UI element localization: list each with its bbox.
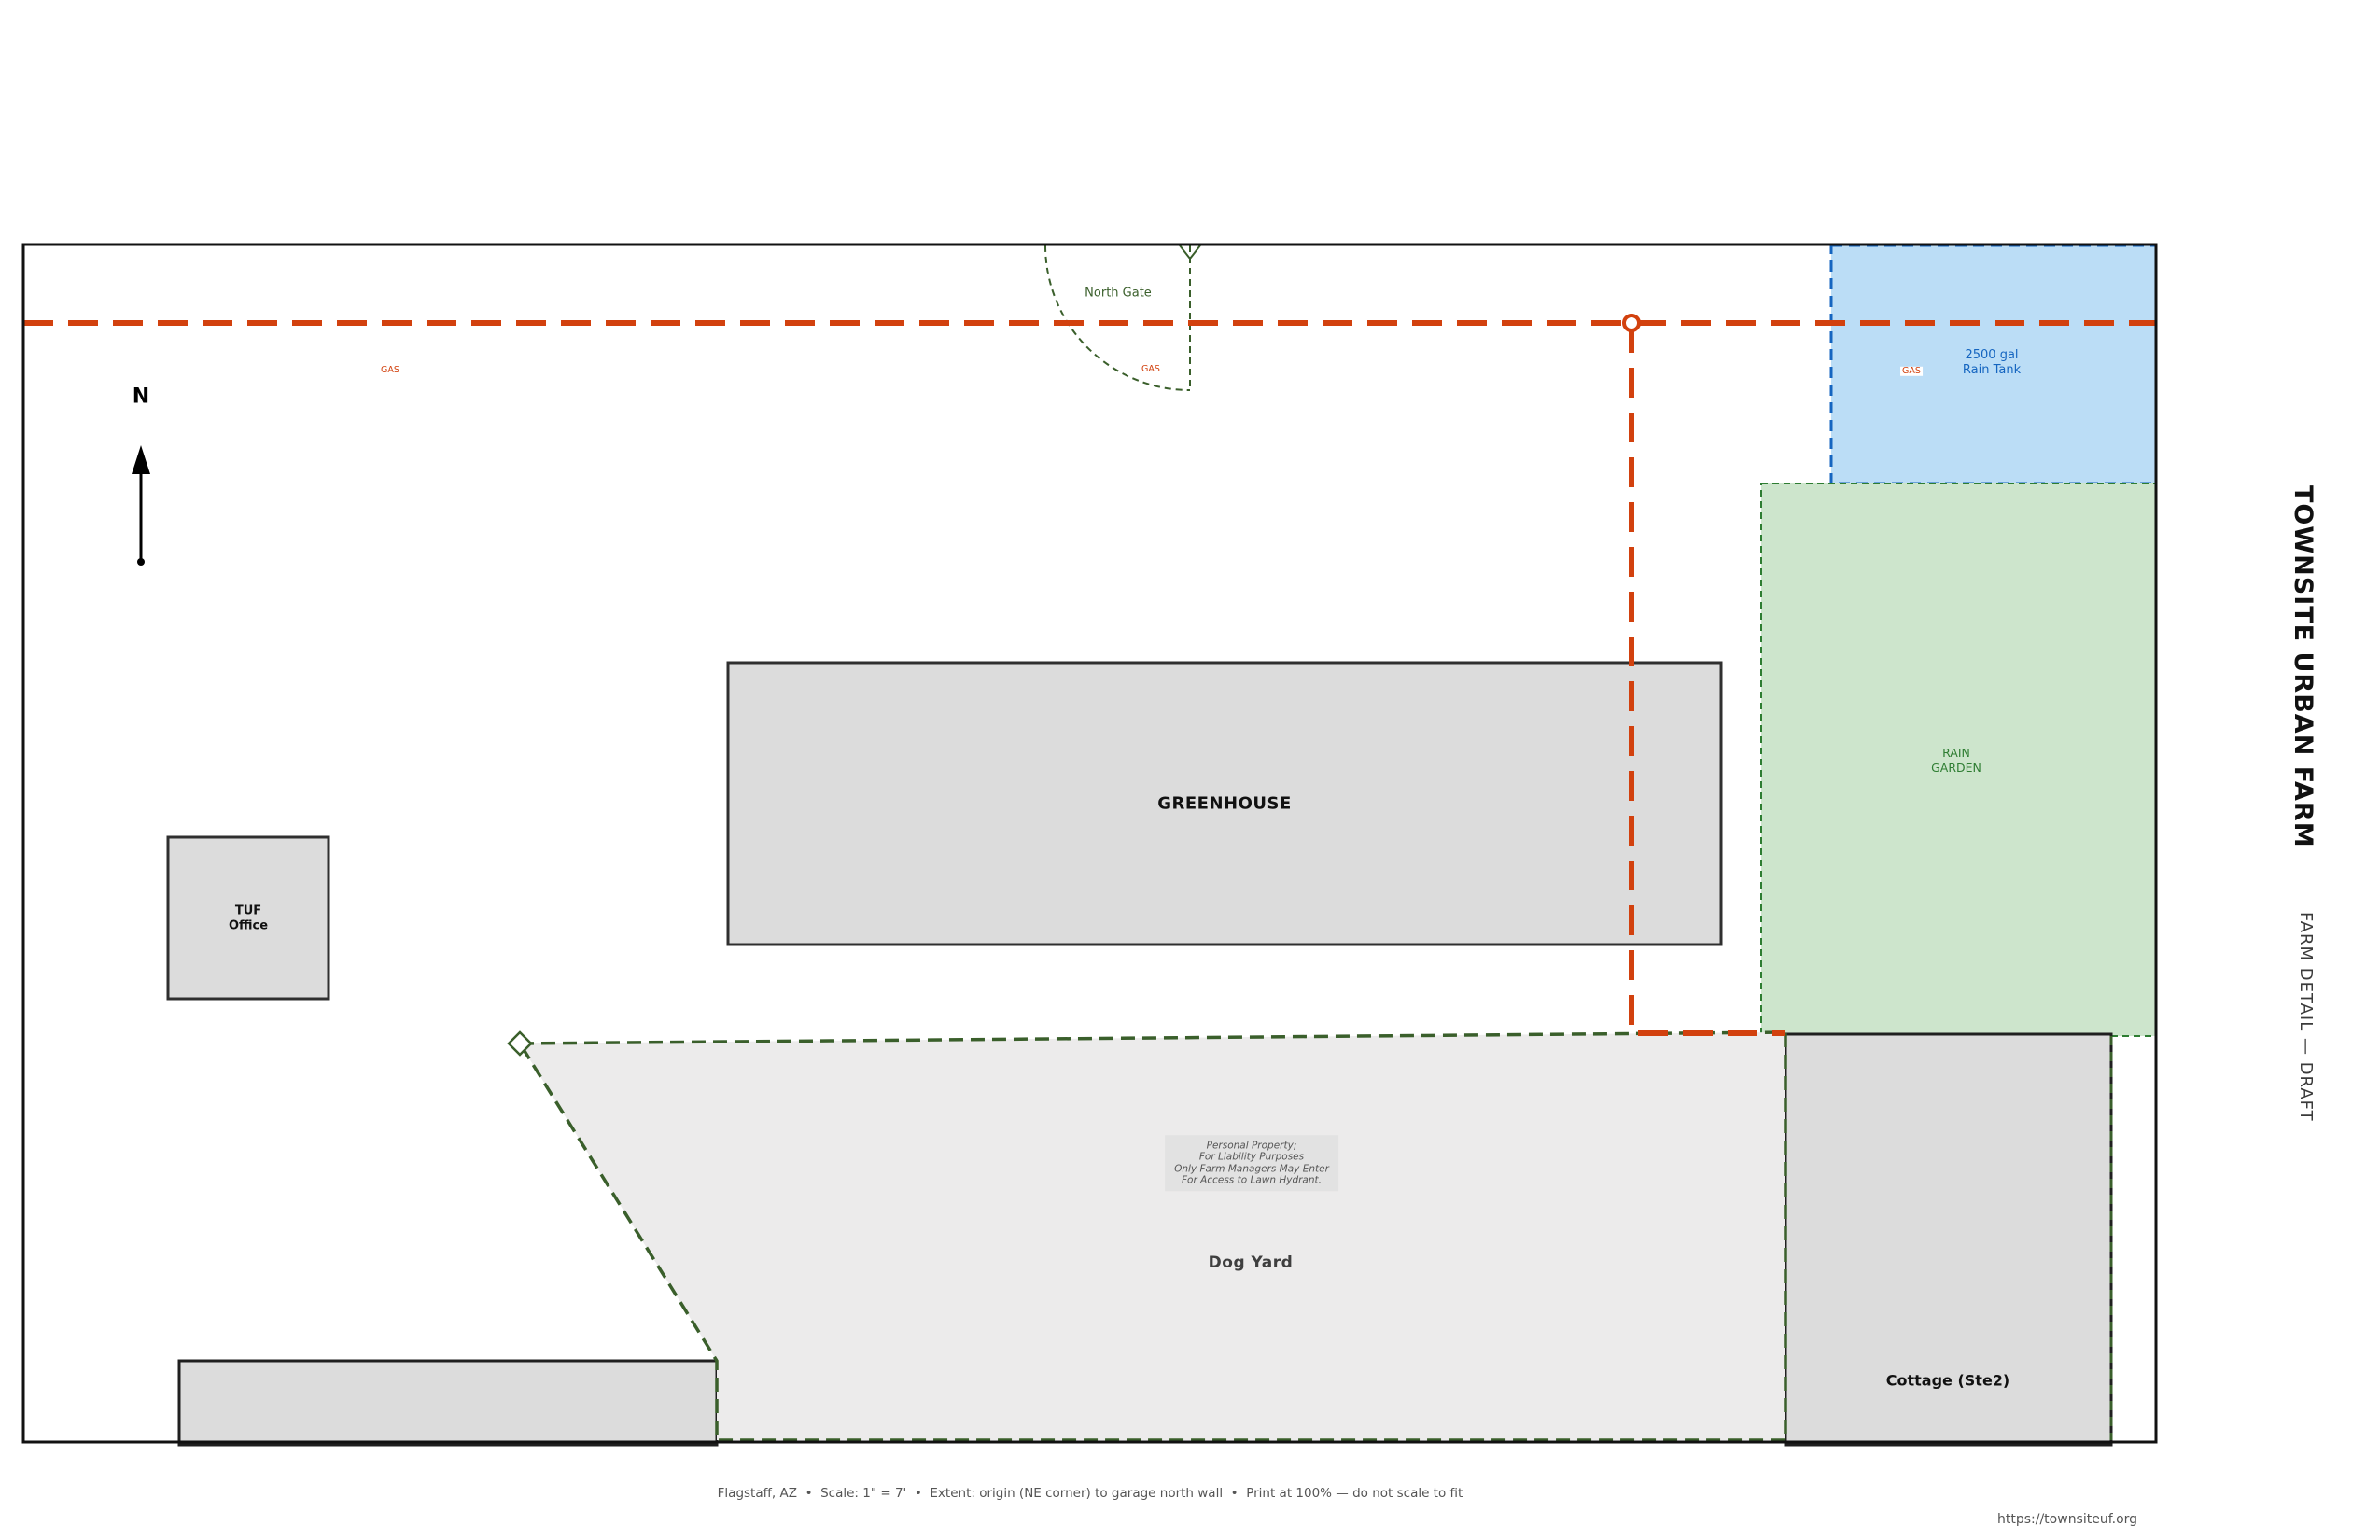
sheet-caption: Flagstaff, AZ • Scale: 1" = 7' • Extent:… xyxy=(718,1486,1463,1501)
dog-yard-label: Dog Yard xyxy=(1209,1253,1294,1272)
website-link: https://townsiteuf.org xyxy=(1997,1512,2137,1527)
tuf-office-label-line1: TUF xyxy=(229,903,268,918)
north-gate-label: North Gate xyxy=(1085,287,1152,301)
gas-label-east: GAS xyxy=(1900,367,1923,376)
plan-drawing xyxy=(0,0,2380,1540)
greenhouse-label: GREENHOUSE xyxy=(1157,794,1292,814)
north-gate-swing-arc xyxy=(1045,245,1190,390)
dog-yard-notice-line4: For Access to Lawn Hydrant. xyxy=(1174,1174,1329,1185)
tuf-office-label-line2: Office xyxy=(229,918,268,933)
gas-tee-fitting xyxy=(1624,315,1639,330)
rain-garden-label-line1: RAIN xyxy=(1931,746,1981,761)
tuf-office-label: TUF Office xyxy=(229,903,268,932)
cottage-label: Cottage (Ste2) xyxy=(1886,1372,2009,1390)
site-plan-sheet: N North Gate GAS GAS GAS 2500 gal Rain T… xyxy=(0,0,2380,1540)
gas-label-center: GAS xyxy=(1140,365,1162,374)
rain-garden-label-line2: GARDEN xyxy=(1931,761,1981,776)
rain-tank-label-line1: 2500 gal xyxy=(1963,348,2021,363)
rain-tank-label: 2500 gal Rain Tank xyxy=(1963,348,2021,379)
garage-building xyxy=(179,1361,717,1445)
north-arrow-base-dot xyxy=(137,558,145,566)
rain-tank-label-line2: Rain Tank xyxy=(1963,363,2021,378)
north-label: N xyxy=(133,385,149,409)
north-arrow-head xyxy=(132,445,150,474)
dog-yard-notice-line1: Personal Property; xyxy=(1174,1140,1329,1151)
dog-yard-notice: Personal Property; For Liability Purpose… xyxy=(1165,1135,1338,1191)
dog-yard-notice-line2: For Liability Purposes xyxy=(1174,1152,1329,1163)
gas-label-west: GAS xyxy=(379,366,401,375)
sheet-title-farm-name: TOWNSITE URBAN FARM xyxy=(2289,485,2317,848)
dog-yard-notice-line3: Only Farm Managers May Enter xyxy=(1174,1163,1329,1174)
rain-garden-label: RAIN GARDEN xyxy=(1931,746,1981,777)
sheet-title-detail-draft: FARM DETAIL — DRAFT xyxy=(2296,912,2316,1122)
